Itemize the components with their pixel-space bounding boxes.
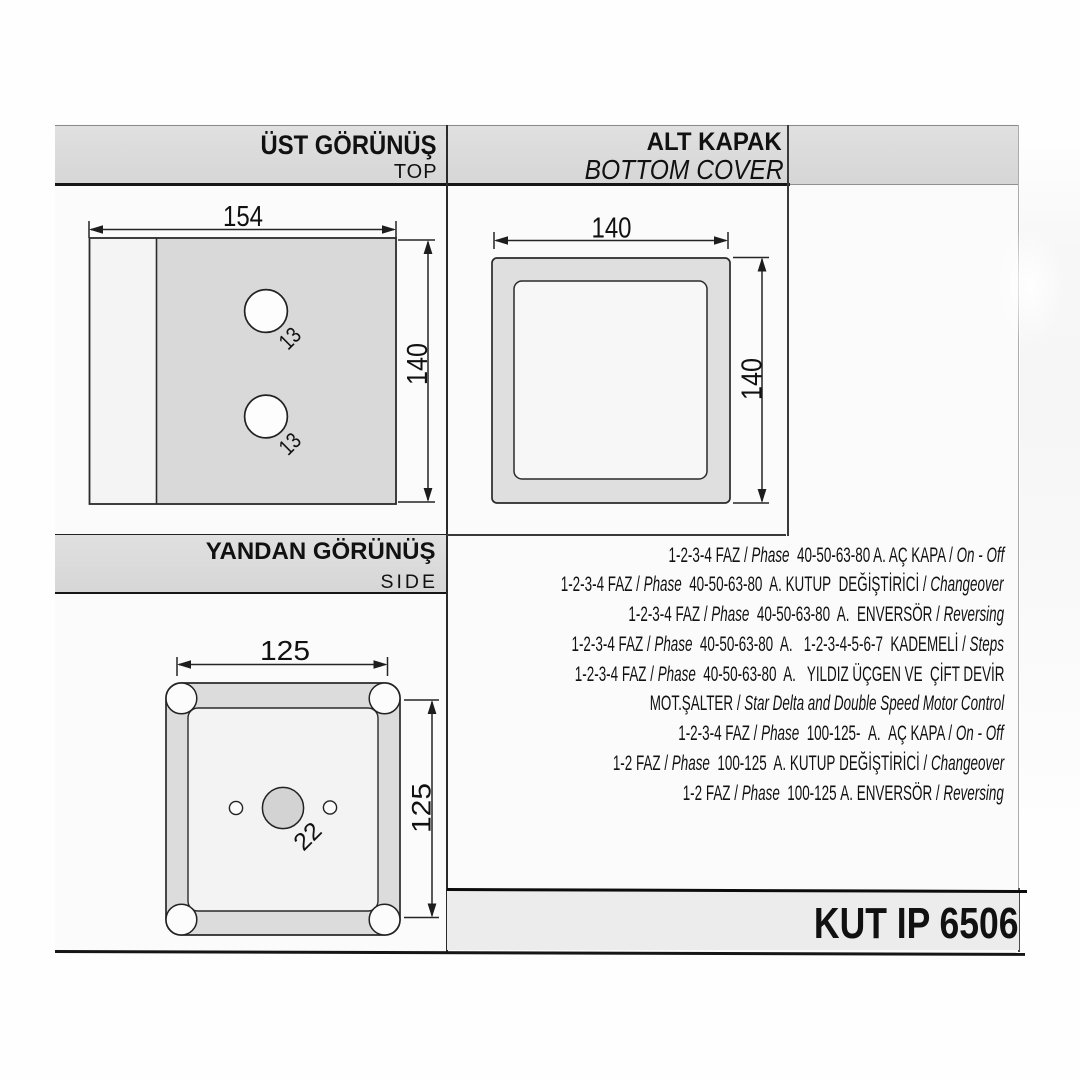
- svg-text:154: 154: [223, 201, 263, 233]
- svg-text:140: 140: [737, 358, 769, 400]
- svg-text:140: 140: [402, 343, 434, 385]
- svg-text:125: 125: [407, 783, 437, 833]
- svg-text:140: 140: [592, 213, 632, 245]
- svg-text:125: 125: [260, 635, 310, 666]
